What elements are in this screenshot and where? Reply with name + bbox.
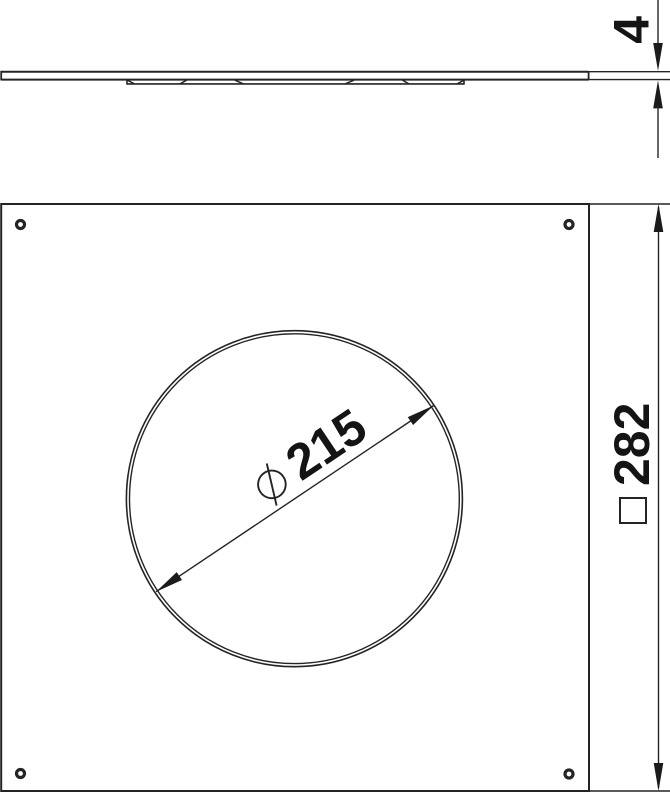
svg-text:4: 4 — [604, 16, 660, 44]
svg-text:282: 282 — [604, 403, 660, 486]
